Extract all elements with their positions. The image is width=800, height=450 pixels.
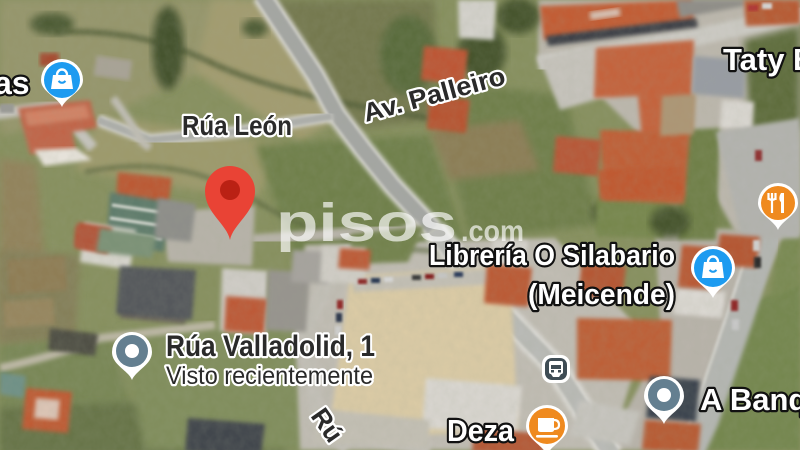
svg-text:Rúa León: Rúa León bbox=[182, 110, 292, 141]
svg-text:as: as bbox=[0, 65, 30, 101]
svg-text:Librería O Silabario: Librería O Silabario bbox=[429, 240, 675, 272]
svg-text:(Meicende): (Meicende) bbox=[528, 279, 675, 311]
svg-text:Rúa Valladolid, 1: Rúa Valladolid, 1 bbox=[166, 330, 375, 363]
svg-text:Visto recientemente: Visto recientemente bbox=[166, 362, 373, 390]
svg-text:A Banqu: A Banqu bbox=[700, 382, 800, 417]
svg-text:Deza: Deza bbox=[447, 413, 515, 448]
svg-text:Taty B: Taty B bbox=[723, 42, 800, 77]
